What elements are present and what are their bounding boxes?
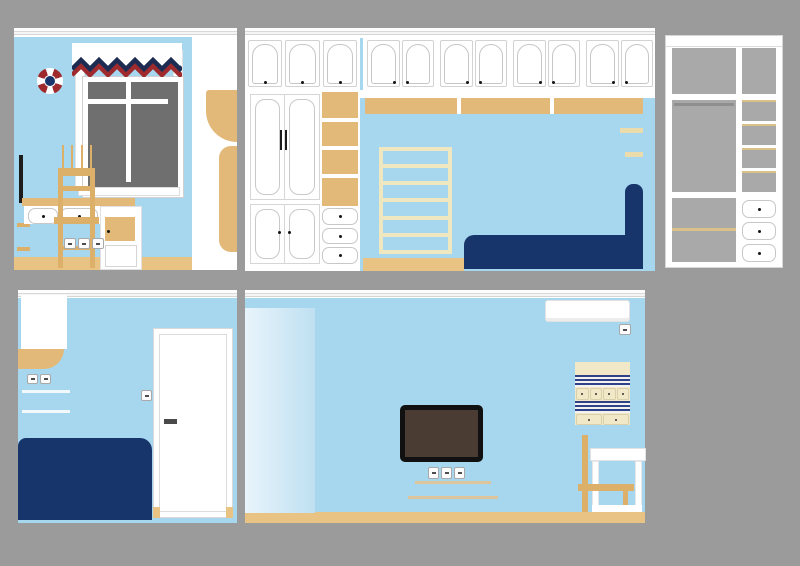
door-arch-panel <box>552 44 577 84</box>
organizer-pocket-row <box>576 388 629 400</box>
organizer-stripe-band <box>575 375 630 387</box>
upper-cabinets-left <box>248 40 357 87</box>
organizer-pocket <box>617 388 630 400</box>
tv-side-profile <box>19 155 23 203</box>
organizer-pocket <box>603 414 629 425</box>
lower-rod <box>672 228 736 231</box>
side-shelf-stack <box>742 100 776 192</box>
outlet-plate <box>454 467 465 479</box>
upper-cabinet-door-pair <box>440 40 507 87</box>
ladder-rung <box>379 233 452 237</box>
drawer-knob <box>339 215 342 218</box>
hanging-compartment <box>672 100 736 192</box>
drawer <box>742 244 776 262</box>
side-shelf-peg-2 <box>17 247 30 251</box>
outlet-plate <box>428 467 439 479</box>
upper-cabinet-door <box>440 40 473 87</box>
upper-cabinet-door <box>475 40 508 87</box>
drawer <box>742 200 776 218</box>
air-conditioner <box>545 300 630 322</box>
switch-plate <box>27 374 38 384</box>
low-cabinet <box>100 206 142 270</box>
sheer-curtain <box>245 308 315 513</box>
table-top <box>590 448 646 461</box>
lifebuoy-icon <box>37 68 63 94</box>
window-transom <box>88 99 168 104</box>
organizer-pocket <box>603 388 616 400</box>
cabinet-knob <box>539 81 542 84</box>
shelf-line <box>322 174 358 178</box>
door-arch-panel <box>406 44 431 84</box>
door-arch-panel <box>590 44 615 84</box>
drawer-knob <box>758 230 761 233</box>
ladder-rung <box>379 147 452 151</box>
door-panel <box>255 99 280 195</box>
wardrobe-door-lower-right <box>284 204 320 264</box>
upper-cabinet-door-pair <box>367 40 434 87</box>
upper-cabinet-door <box>248 40 282 87</box>
crown-molding <box>245 28 655 38</box>
ladder-rung <box>379 198 452 202</box>
compartment-top-right <box>742 48 776 94</box>
ladder-rung <box>379 164 452 168</box>
outlet-plate <box>441 467 452 479</box>
door-arch-panel <box>479 44 504 84</box>
drawer <box>322 247 358 264</box>
bunk-ladder <box>379 147 452 254</box>
cabinet-knob <box>339 81 342 84</box>
upper-cabinet-door-pair <box>586 40 653 87</box>
door-arch-panel <box>444 44 469 84</box>
wall-shelf-line <box>408 496 498 499</box>
ladder-rail <box>448 147 452 254</box>
organizer-pocket <box>576 414 602 425</box>
upper-cabinet-door <box>586 40 619 87</box>
door-arch-panel <box>252 44 278 84</box>
wardrobe-door-upper-right <box>284 94 320 200</box>
chair-slat <box>81 145 83 168</box>
door-panel <box>289 99 315 195</box>
drawer <box>742 222 776 240</box>
bed-body <box>464 235 643 269</box>
lifebuoy-center <box>45 76 55 86</box>
compartment-top-left <box>672 48 736 94</box>
cabinet-knob <box>406 81 409 84</box>
wardrobe-top-trim <box>666 36 782 47</box>
drawer-knob <box>339 235 342 238</box>
decor-shape-side <box>219 146 237 252</box>
ladder-rung <box>379 181 452 185</box>
switch-plate <box>40 374 51 384</box>
upper-cabinet-door-pair <box>513 40 580 87</box>
door-switch-plate <box>141 390 152 401</box>
low-cabinet-panel <box>105 217 135 241</box>
wall-shelf <box>620 128 643 133</box>
upper-cabinets-right <box>367 40 653 87</box>
wardrobe-door-lower-left <box>250 204 285 264</box>
door-arch-panel <box>371 44 396 84</box>
hanging-organizer <box>575 362 630 425</box>
door-arch-panel <box>327 44 353 84</box>
window <box>83 77 183 197</box>
wall-shelf-line <box>22 410 70 413</box>
switch-plate <box>64 238 76 249</box>
decor-shape <box>18 349 64 369</box>
ladder-rung <box>379 250 452 254</box>
floor-wedge <box>226 507 233 518</box>
upper-cabinet-door <box>513 40 546 87</box>
shelf-compartment <box>742 171 776 192</box>
ladder-rail <box>379 147 383 254</box>
switch-plate <box>78 238 90 249</box>
shelf-line <box>322 118 358 122</box>
soffit-band <box>365 98 643 114</box>
chair-seat <box>578 484 634 491</box>
door-arch-panel <box>289 44 315 84</box>
chair-slat <box>62 145 64 168</box>
panel-wardrobe-interior <box>665 35 783 268</box>
door-handle <box>164 419 177 424</box>
ac-switch-plate <box>619 324 631 335</box>
chair-slat <box>71 145 73 168</box>
shelf-compartment <box>742 100 776 121</box>
upper-cabinet-door <box>367 40 400 87</box>
floor-strip <box>245 512 645 523</box>
desk-switch-plates <box>64 238 102 248</box>
window-mullion-vertical <box>126 82 131 182</box>
shelf-line <box>322 146 358 150</box>
chair-seat <box>54 217 99 224</box>
panel-window-wall <box>14 28 237 270</box>
drawer <box>322 208 358 225</box>
cabinet-knob <box>107 230 110 233</box>
upper-cabinet-door <box>323 40 357 87</box>
ladder-rung <box>379 216 452 220</box>
compartment-bottom-left <box>672 198 736 262</box>
wall-shelf-line <box>22 390 70 393</box>
floor-strip <box>363 258 464 271</box>
wardrobe-handle <box>285 130 287 150</box>
tv <box>400 405 483 462</box>
shelf-compartment <box>742 124 776 145</box>
wardrobe-handle <box>280 130 282 150</box>
shelf-drawers <box>322 208 358 264</box>
upper-cabinet-door <box>402 40 435 87</box>
panel-tv-wall <box>245 290 645 523</box>
drawer-knob <box>758 252 761 255</box>
organizer-pocket-row <box>576 414 629 425</box>
tv-outlets <box>428 467 458 477</box>
crown-molding <box>245 290 645 298</box>
drawer-knob <box>42 215 45 218</box>
door-panel <box>289 209 315 259</box>
door-arch-panel <box>517 44 542 84</box>
organizer-pocket <box>576 388 589 400</box>
cabinet-knob <box>625 81 628 84</box>
door-arch-panel <box>625 44 650 84</box>
hanging-rod <box>674 103 734 106</box>
cabinet-knob <box>393 81 396 84</box>
cabinet-knob <box>466 81 469 84</box>
panel-bed-cabinet-wall <box>245 28 655 271</box>
cabinet-side-profile <box>21 295 67 349</box>
wall-switches <box>27 374 48 382</box>
switch-plate <box>92 238 104 249</box>
low-cabinet-door <box>105 245 137 267</box>
tv-screen <box>405 410 478 457</box>
door-panel <box>255 209 280 259</box>
wall-shelf-line <box>415 481 491 484</box>
drawer <box>322 228 358 245</box>
cabinet-knob <box>278 231 281 234</box>
chair-leg <box>582 491 587 512</box>
upper-cabinet-door <box>548 40 581 87</box>
cabinet-knob <box>612 81 615 84</box>
soffit-trim <box>360 90 655 98</box>
valance-zigzag <box>72 43 182 77</box>
upper-cabinet-door <box>285 40 319 87</box>
drawer-knob <box>339 254 342 257</box>
soffit-divider <box>457 98 461 114</box>
door <box>159 334 227 512</box>
cabinet-knob <box>479 81 482 84</box>
chair-slat <box>90 145 92 168</box>
shelf-compartment <box>742 148 776 169</box>
drawer-knob <box>758 208 761 211</box>
floor-wedge <box>153 507 160 518</box>
elevation-sheet <box>0 0 800 566</box>
organizer-pocket <box>590 388 603 400</box>
bed-headboard-view <box>18 438 152 520</box>
wall-shelf <box>625 152 643 157</box>
crown-molding <box>14 28 237 37</box>
organizer-stripe-band <box>575 401 630 413</box>
panel-door-wall <box>18 290 237 523</box>
interior-drawers <box>742 200 776 262</box>
desk-top <box>22 198 135 206</box>
cabinet-knob <box>288 231 291 234</box>
upper-cabinet-door <box>621 40 654 87</box>
chair-back-slats <box>62 145 92 168</box>
cabinet-knob <box>552 81 555 84</box>
soffit-divider <box>550 98 554 114</box>
table-base <box>592 505 642 512</box>
